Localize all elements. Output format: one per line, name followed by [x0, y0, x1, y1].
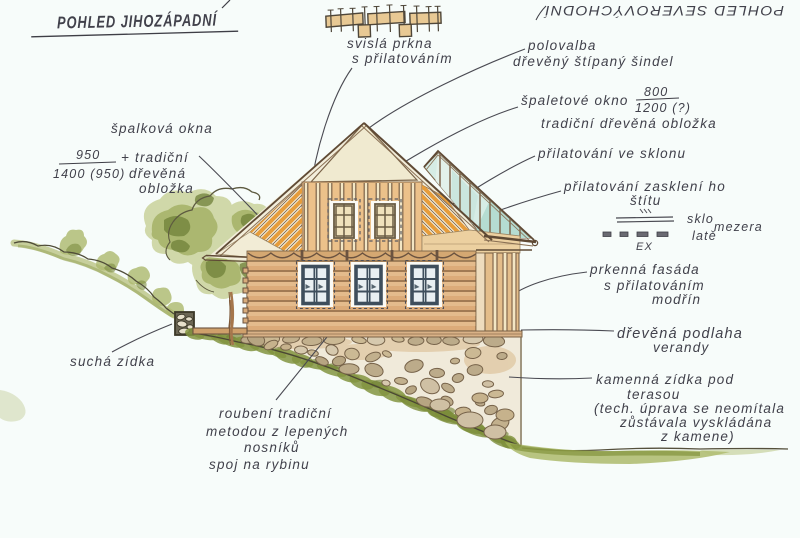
svg-text:dřevěný štípaný šindel: dřevěný štípaný šindel: [513, 54, 674, 69]
svg-text:z kamene): z kamene): [660, 429, 735, 444]
svg-text:nosníků: nosníků: [244, 440, 300, 455]
svg-text:prkenná fasáda: prkenná fasáda: [589, 262, 700, 277]
svg-text:tradiční dřevěná obložka: tradiční dřevěná obložka: [541, 116, 717, 131]
svg-text:mezera: mezera: [714, 220, 763, 234]
svg-text:1400 (950): 1400 (950): [53, 167, 125, 181]
svg-text:přilatování ve sklonu: přilatování ve sklonu: [537, 146, 686, 161]
svg-text:sklo: sklo: [687, 212, 714, 226]
svg-text:metodou z lepených: metodou z lepených: [206, 424, 348, 439]
svg-text:suchá zídka: suchá zídka: [70, 354, 155, 369]
svg-text:polovalba: polovalba: [527, 38, 597, 53]
svg-text:POHLED JIHOZÁPADNÍ: POHLED JIHOZÁPADNÍ: [57, 11, 219, 33]
svg-text:svislá prkna: svislá prkna: [347, 36, 433, 51]
svg-text:s přilatováním: s přilatováním: [352, 51, 453, 66]
svg-text:1200 (?): 1200 (?): [635, 101, 691, 115]
svg-text:s přilatováním: s přilatováním: [604, 278, 705, 293]
svg-text:POHLED SEVEROVÝCHODNÍ: POHLED SEVEROVÝCHODNÍ: [543, 3, 784, 19]
svg-text:kamenná zídka pod: kamenná zídka pod: [596, 372, 734, 387]
svg-text:terasou: terasou: [627, 387, 680, 402]
svg-text:verandy: verandy: [653, 340, 709, 355]
svg-text:zůstávala vyskládána: zůstávala vyskládána: [619, 415, 772, 430]
svg-text:800: 800: [644, 85, 668, 99]
svg-text:spoj na rybinu: spoj na rybinu: [209, 457, 310, 472]
svg-text:roubení tradiční: roubení tradiční: [219, 406, 332, 421]
svg-text:obložka: obložka: [139, 181, 194, 196]
svg-text:(tech. úprava se neomítala: (tech. úprava se neomítala: [594, 401, 785, 416]
svg-text:dřevěná: dřevěná: [129, 166, 186, 181]
svg-text:950: 950: [76, 148, 100, 162]
svg-text:modřín: modřín: [652, 292, 701, 307]
svg-text:přilatování zasklení ho: přilatování zasklení ho: [563, 179, 726, 194]
svg-text:špalková okna: špalková okna: [111, 121, 213, 136]
svg-text:+ tradiční: + tradiční: [121, 150, 189, 165]
svg-text:štítu: štítu: [630, 193, 662, 208]
svg-text:EX: EX: [636, 241, 653, 253]
svg-text:špaletové okno: špaletové okno: [521, 93, 629, 108]
svg-text:latě: latě: [692, 229, 717, 243]
